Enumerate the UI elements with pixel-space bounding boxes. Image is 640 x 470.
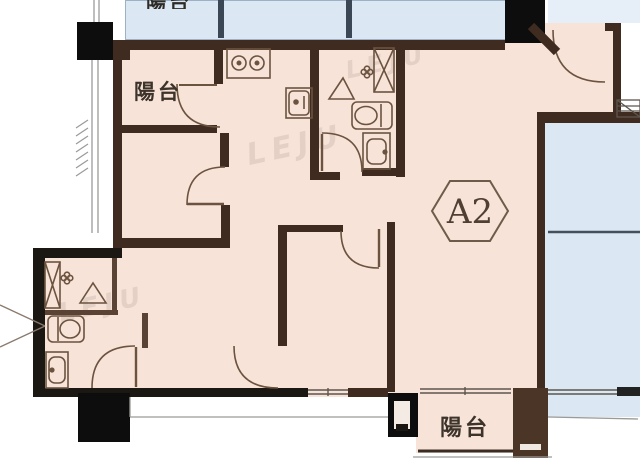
fixture-overlay <box>0 0 640 470</box>
window-neighbor-right <box>548 387 640 396</box>
floor-plan: LEJU LEJU LEJU <box>0 0 640 470</box>
toilet-icon <box>48 316 84 342</box>
shower-icon <box>329 78 354 99</box>
unit-label: A2 <box>432 192 508 232</box>
balcony-bottom-label: 陽台 <box>440 410 490 442</box>
balcony-top-label: 陽台 <box>134 76 182 106</box>
basin-icon <box>46 352 68 388</box>
neighbor-balcony-label-clipped: 陽台 <box>146 0 202 9</box>
stove-icon <box>227 49 270 78</box>
door-arc-bathroom-top <box>322 133 362 172</box>
kitchen-sink-icon <box>286 88 312 118</box>
door-arc-bedroom2 <box>341 231 379 268</box>
door-arc-bathroom-lower <box>92 346 135 388</box>
door-arc-hallway <box>234 346 278 388</box>
door-arc-entry <box>553 30 605 82</box>
shaft-hatch-icon <box>374 48 394 92</box>
basin-icon <box>363 133 390 169</box>
floor-drain-icon <box>361 66 373 78</box>
door-arc-bedroom1 <box>187 167 225 205</box>
stair-hatch-icon <box>617 100 640 117</box>
door-arc-balcony-top <box>177 84 220 127</box>
floor-drain-icon <box>61 272 73 284</box>
window-bedroom2 <box>308 388 348 396</box>
toilet-icon <box>352 102 392 129</box>
window-balcony-bottom <box>420 387 511 395</box>
exterior-hatch-ticks <box>76 120 88 176</box>
left-arrow-mark <box>0 305 45 347</box>
shower-icon <box>80 283 106 303</box>
shaft-hatch-icon <box>45 262 60 308</box>
